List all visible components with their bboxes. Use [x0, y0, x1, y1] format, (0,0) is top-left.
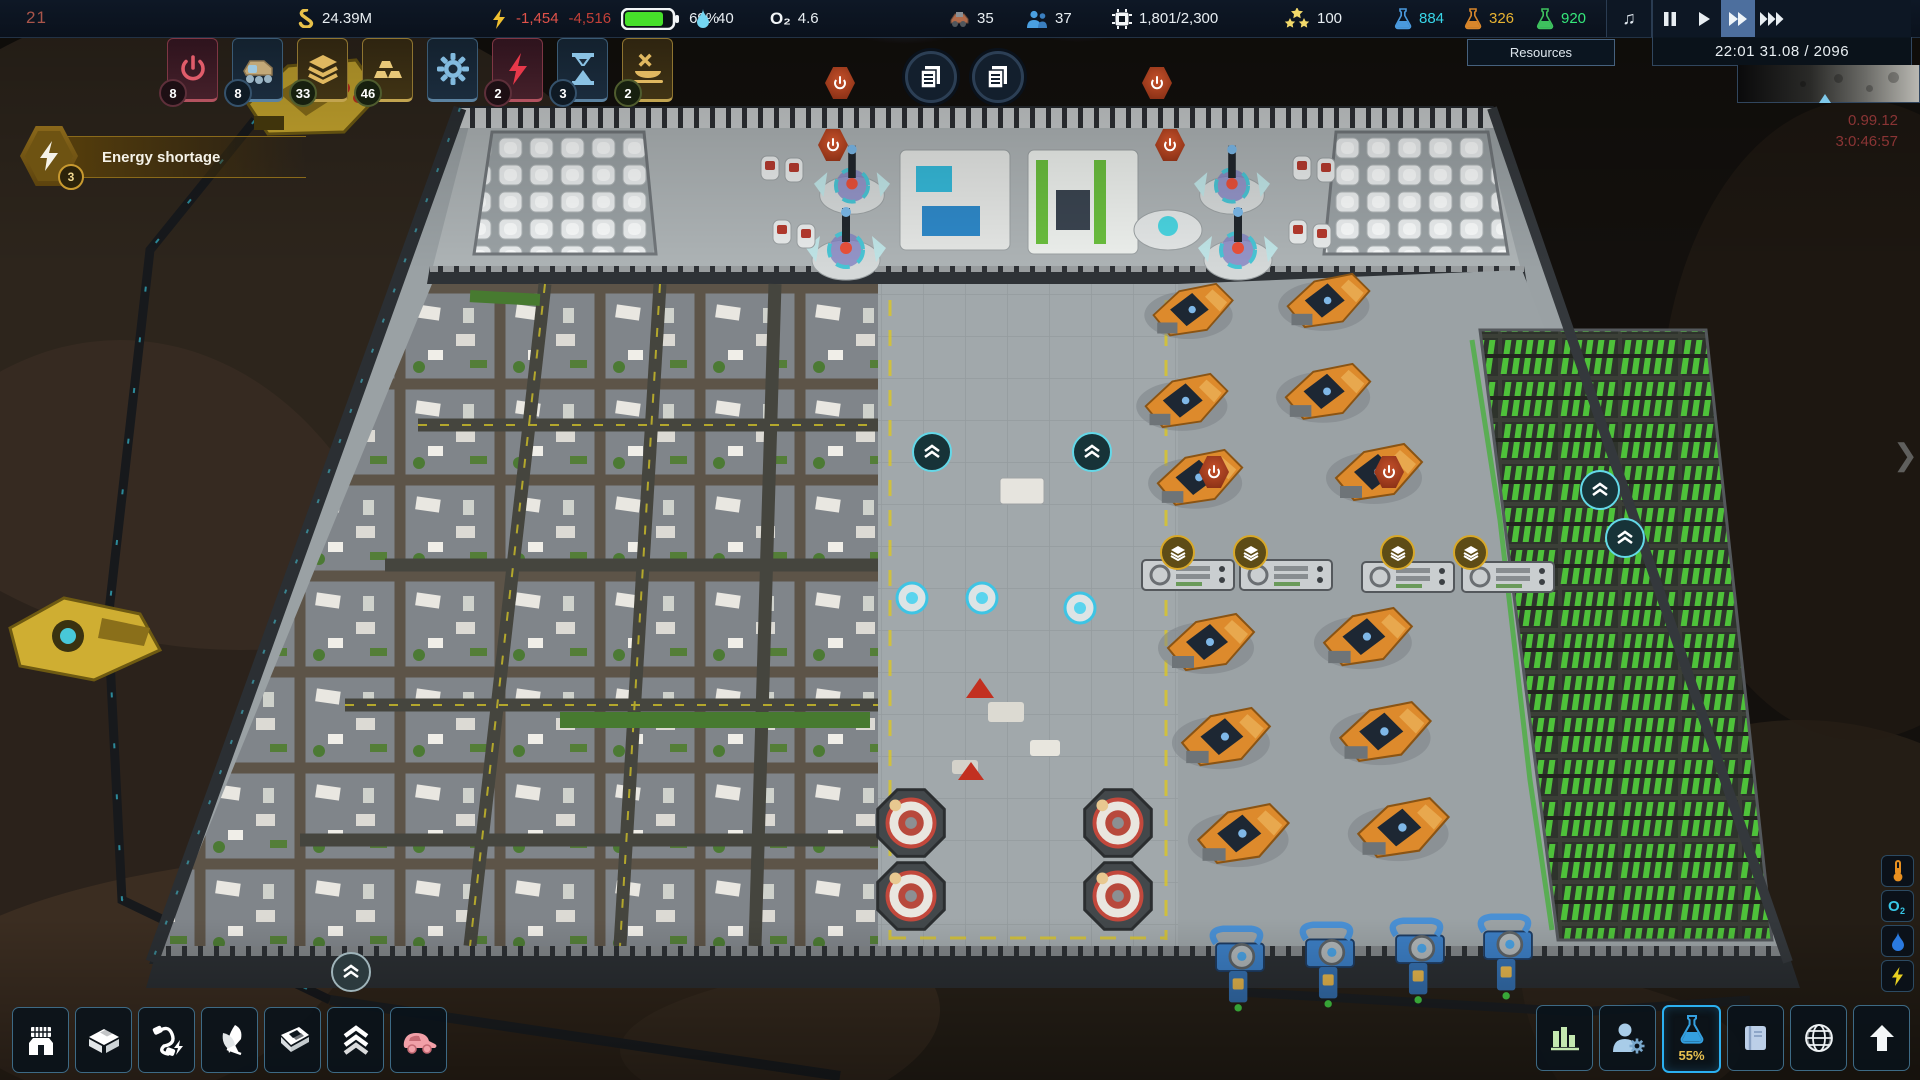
statistics-button[interactable] [1536, 1005, 1593, 1071]
flask-green-icon [1536, 8, 1554, 30]
storage-map-icon[interactable] [1453, 535, 1488, 570]
battery-icon [621, 8, 679, 30]
fast-forward-button[interactable] [1721, 0, 1755, 37]
oxygen-icon: O₂ [770, 9, 791, 29]
upgrade-map-icon[interactable] [1605, 518, 1645, 558]
research-progress: 55% [1678, 1048, 1704, 1063]
upgrades-button[interactable] [327, 1007, 384, 1073]
water-icon [696, 9, 710, 28]
conveyor-icon [275, 1025, 311, 1055]
storage-map-icon[interactable] [1160, 535, 1195, 570]
building-icon [25, 1025, 57, 1055]
fastest-forward-button[interactable] [1755, 0, 1789, 37]
alert-supply-missing[interactable]: 2 [622, 38, 673, 102]
power-overlay-toggle[interactable] [1881, 960, 1914, 992]
flask-blue-icon [1394, 8, 1412, 30]
svg-text:O: O [1888, 898, 1900, 915]
energy-icon [492, 9, 506, 29]
report-button[interactable] [905, 51, 957, 103]
clock-text: 22:01 31.08 / 2096 [1715, 43, 1849, 60]
game-clock: 22:01 31.08 / 2096 [1652, 37, 1912, 66]
alert-resources[interactable]: 46 [362, 38, 413, 102]
gold-bars-icon [372, 55, 404, 83]
storage-map-icon[interactable] [1380, 535, 1415, 570]
rating-value: 100 [1317, 10, 1342, 27]
oxygen-value: 4.6 [798, 10, 819, 27]
drill-claw-icon [213, 1023, 247, 1057]
report-button[interactable] [972, 51, 1024, 103]
power-icon [178, 54, 208, 84]
research-button[interactable]: 55% [1662, 1005, 1721, 1073]
stars-icon [1284, 8, 1310, 30]
gear-icon [437, 53, 469, 85]
water-value: 40 [717, 10, 734, 27]
alert-count: 8 [159, 79, 187, 107]
corner-counter: 21 [26, 8, 47, 28]
o2-icon: O2 [1887, 897, 1909, 915]
bowl-x-icon [631, 53, 665, 85]
water-overlay-toggle[interactable] [1881, 925, 1914, 957]
thermometer-icon [1891, 860, 1905, 882]
game-speed-controls [1652, 0, 1911, 37]
upgrade-map-icon[interactable] [912, 432, 952, 472]
time-marker [1819, 94, 1831, 103]
rover-count: 35 [977, 10, 994, 27]
banner-title: Energy shortage [102, 149, 220, 166]
upgrade-map-icon[interactable] [1072, 432, 1112, 472]
box-icon [87, 1025, 121, 1055]
oxygen-overlay-toggle[interactable]: O2 [1881, 890, 1914, 922]
colonists-icon [1026, 10, 1048, 28]
energy-change-2: -4,516 [569, 10, 612, 27]
colonist-management-button[interactable] [1599, 1005, 1656, 1071]
playtime: 3:0:46:57 [1835, 131, 1898, 152]
version-info: 0.99.12 3:0:46:57 [1835, 110, 1898, 152]
management-toolbar: 55% [1536, 1005, 1910, 1073]
money-stat[interactable]: 24.39M [298, 0, 372, 37]
alert-rover[interactable]: 8 [232, 38, 283, 102]
upgrade-map-icon[interactable] [331, 952, 371, 992]
alert-waiting[interactable]: 3 [557, 38, 608, 102]
temperature-overlay-toggle[interactable] [1881, 855, 1914, 887]
globe-icon [1803, 1022, 1835, 1054]
money-value: 24.39M [322, 10, 372, 27]
alert-count: 2 [484, 79, 512, 107]
alert-category-bar: 8 8 33 46 2 3 2 [167, 38, 673, 102]
banner-count: 3 [58, 164, 84, 190]
encyclopedia-button[interactable] [1727, 1005, 1784, 1071]
rover-stat[interactable]: 35 [948, 0, 994, 37]
hourglass-icon [570, 53, 596, 85]
research-blue-stat[interactable]: 884 [1394, 0, 1444, 37]
bar-chart-icon [1549, 1023, 1581, 1053]
ascend-button[interactable] [1853, 1005, 1910, 1071]
up-arrow-icon [1867, 1023, 1897, 1053]
svg-text:2: 2 [1900, 906, 1905, 915]
music-icon: ♫ [1622, 8, 1636, 29]
energy-stat[interactable]: -1,454 -4,516 69% [492, 0, 719, 37]
colonist-count: 37 [1055, 10, 1072, 27]
power-cables-button[interactable] [138, 1007, 195, 1073]
overlay-toggles: O2 [1881, 855, 1914, 992]
energy-change: -1,454 [516, 10, 559, 27]
oxygen-stat[interactable]: O₂ 4.6 [770, 0, 819, 37]
research-green-value: 920 [1561, 10, 1586, 27]
rating-stat[interactable]: 100 [1284, 0, 1342, 37]
pause-button[interactable] [1653, 0, 1687, 37]
rover-icon [948, 10, 970, 28]
drills-button[interactable] [201, 1007, 258, 1073]
lightning-icon [507, 53, 529, 85]
alert-count: 46 [354, 79, 382, 107]
resources-tooltip: Resources [1467, 39, 1615, 66]
layers-icon [306, 54, 340, 84]
bolt-icon [1891, 967, 1904, 986]
chevrons-up-icon [340, 1024, 372, 1056]
compute-stat[interactable]: 1,801/2,300 [1112, 0, 1218, 37]
alert-storage-full[interactable]: 33 [297, 38, 348, 102]
music-toggle-button[interactable]: ♫ [1606, 0, 1652, 37]
research-orange-stat[interactable]: 326 [1464, 0, 1514, 37]
flask-orange-icon [1464, 8, 1482, 30]
compute-value: 1,801/2,300 [1139, 10, 1218, 27]
storage-map-icon[interactable] [1233, 535, 1268, 570]
vehicle-icon [400, 1026, 438, 1054]
buildings-button[interactable] [12, 1007, 69, 1073]
play-button[interactable] [1687, 0, 1721, 37]
research-flask-icon [1679, 1015, 1705, 1045]
build-toolbar [12, 1007, 447, 1073]
colonist-stat[interactable]: 37 [1026, 0, 1072, 37]
conveyors-button[interactable] [264, 1007, 321, 1073]
research-green-stat[interactable]: 920 [1536, 0, 1586, 37]
vehicles-button[interactable] [390, 1007, 447, 1073]
version-number: 0.99.12 [1835, 110, 1898, 131]
water-stat[interactable]: 40 [696, 0, 734, 37]
cable-icon [150, 1024, 184, 1056]
alert-count: 33 [289, 79, 317, 107]
chip-icon [1112, 9, 1132, 29]
alert-energy[interactable]: 2 [492, 38, 543, 102]
alert-count: 8 [224, 79, 252, 107]
alert-power-off[interactable]: 8 [167, 38, 218, 102]
upgrade-map-icon[interactable] [1580, 470, 1620, 510]
person-gear-icon [1611, 1022, 1645, 1054]
edge-scroll-arrow[interactable]: ❯ [1893, 438, 1918, 473]
modules-button[interactable] [75, 1007, 132, 1073]
droplet-icon [1891, 932, 1905, 951]
book-icon [1741, 1023, 1771, 1053]
tooltip-text: Resources [1510, 45, 1572, 60]
alert-count: 3 [549, 79, 577, 107]
alert-count: 2 [614, 79, 642, 107]
research-orange-value: 326 [1489, 10, 1514, 27]
energy-shortage-banner[interactable]: Energy shortage 3 [14, 126, 306, 186]
money-icon [298, 9, 315, 28]
alert-production[interactable] [427, 38, 478, 102]
research-blue-value: 884 [1419, 10, 1444, 27]
planet-view-button[interactable] [1790, 1005, 1847, 1071]
